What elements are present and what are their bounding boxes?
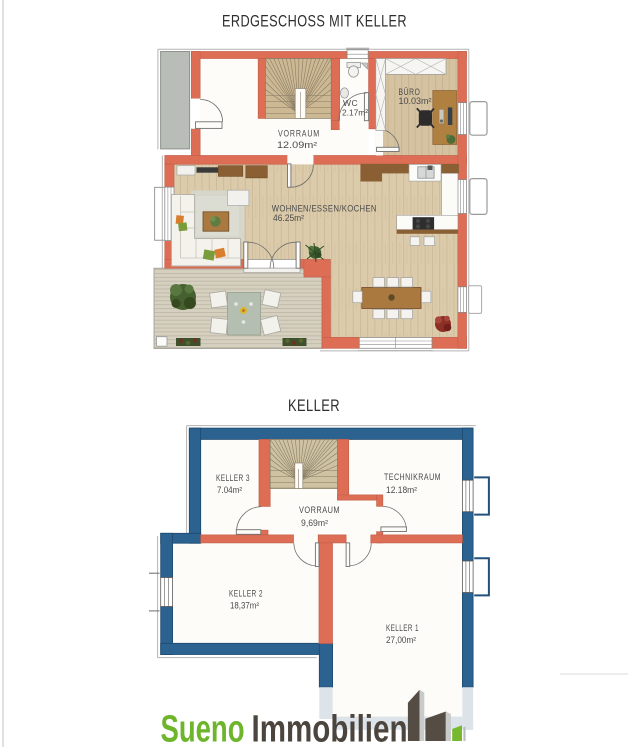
svg-text:9,69m²: 9,69m² <box>301 518 328 528</box>
svg-text:VORRAUM: VORRAUM <box>278 129 320 139</box>
svg-text:2.17m²: 2.17m² <box>342 108 368 118</box>
svg-text:KELLER: KELLER <box>288 397 340 415</box>
svg-text:12.09m²: 12.09m² <box>277 140 317 150</box>
svg-text:10.03m²: 10.03m² <box>399 96 432 106</box>
svg-text:18,37m²: 18,37m² <box>230 601 259 611</box>
svg-text:VORRAUM: VORRAUM <box>299 505 340 515</box>
svg-text:TECHNIKRAUM: TECHNIKRAUM <box>384 472 441 482</box>
svg-text:Sueno: Sueno <box>161 709 245 747</box>
svg-text:ERDGESCHOSS MIT KELLER: ERDGESCHOSS MIT KELLER <box>222 13 407 31</box>
svg-text:WC: WC <box>343 98 358 108</box>
svg-text:Immobilien: Immobilien <box>252 709 408 747</box>
svg-text:12.18m²: 12.18m² <box>386 485 417 495</box>
svg-text:27,00m²: 27,00m² <box>386 635 416 645</box>
svg-text:7.04m²: 7.04m² <box>217 485 242 495</box>
svg-text:KELLER 3: KELLER 3 <box>216 473 250 483</box>
svg-text:46.25m²: 46.25m² <box>273 213 304 223</box>
svg-text:KELLER 1: KELLER 1 <box>386 623 419 633</box>
svg-text:KELLER 2: KELLER 2 <box>229 589 263 599</box>
